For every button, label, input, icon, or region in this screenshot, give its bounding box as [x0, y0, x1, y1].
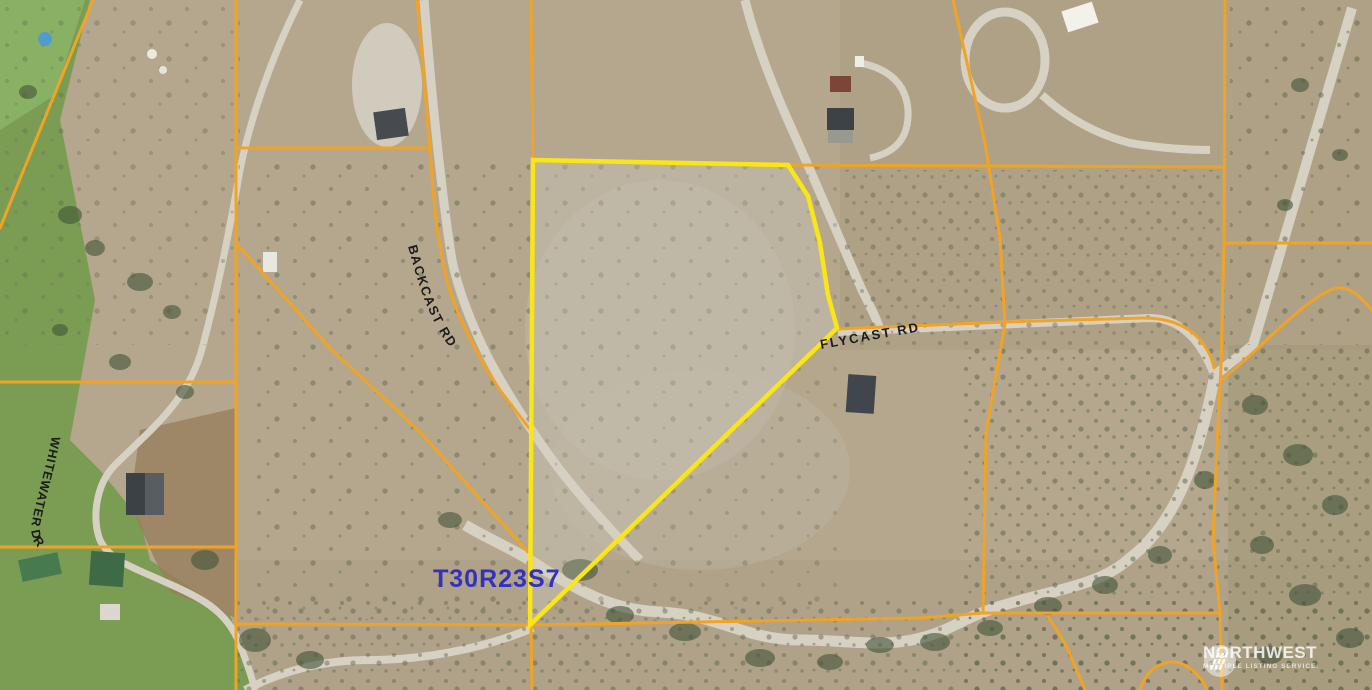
building-red-roof — [830, 76, 851, 92]
parcel-line-below-corner — [531, 625, 532, 690]
nwmls-watermark: NORTHWEST MULTIPLE LISTING SERVICE. — [1203, 644, 1319, 670]
yard-dot-2 — [159, 66, 167, 74]
parcel-line-h165 — [790, 165, 1224, 167]
parcel-map: BACKCAST RD WHITEWATER DR FLYCAST RD T30… — [0, 0, 1372, 690]
pool-blue — [38, 32, 52, 46]
parcel-line-above-parcel — [531, 0, 533, 160]
section-township-label: T30R23S7 — [433, 565, 561, 594]
building-center-dark — [827, 108, 854, 130]
aerial-map-canvas: BACKCAST RD WHITEWATER DR FLYCAST RD — [0, 0, 1372, 690]
white-rv-2 — [855, 56, 864, 67]
yard-dot-1 — [147, 49, 157, 59]
white-rv — [263, 252, 277, 272]
building-flycast-south — [846, 374, 877, 414]
white-shed — [100, 604, 120, 620]
nwmls-logo-icon — [1203, 644, 1237, 678]
building-green-roof-1 — [89, 551, 125, 587]
building-topleft — [373, 108, 409, 140]
building-center-light — [828, 130, 853, 143]
barn-roof-light — [145, 473, 164, 515]
